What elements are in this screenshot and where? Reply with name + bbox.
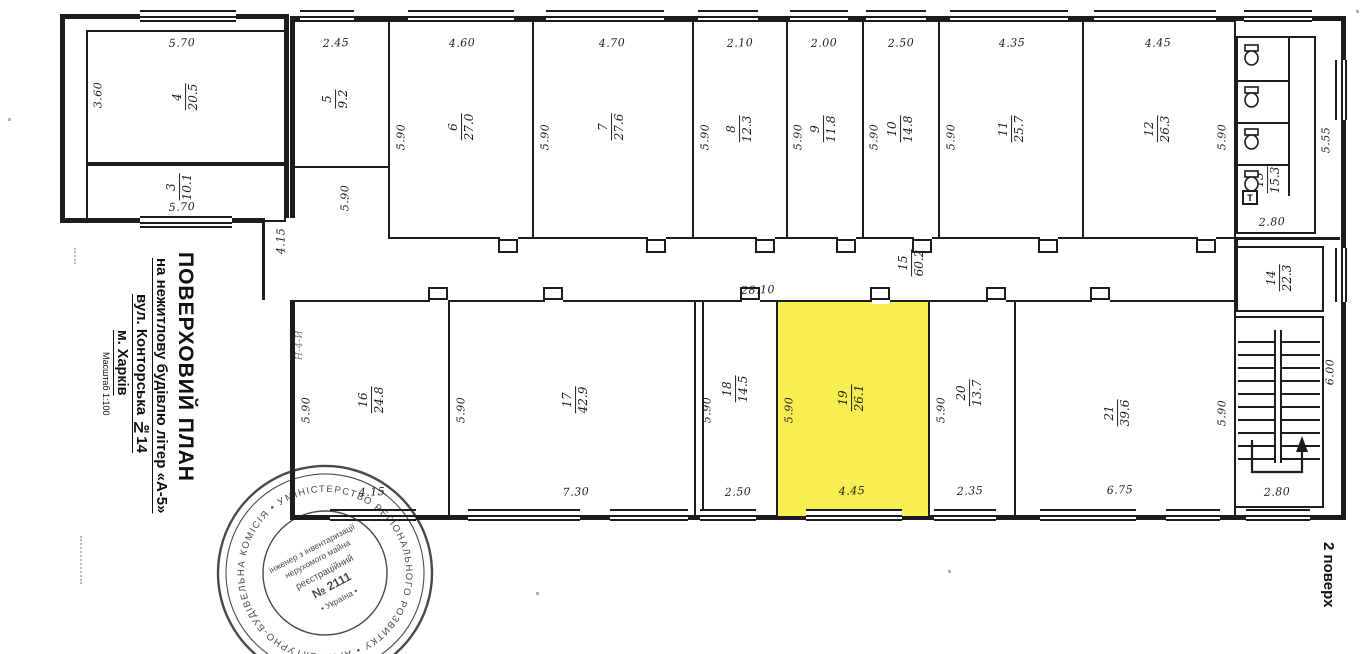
window-marker — [806, 509, 902, 521]
dimension-label: 5.90 — [792, 124, 805, 151]
passage-dimension: 4.15 — [275, 228, 288, 255]
room-number: 19 — [837, 385, 852, 412]
window-marker — [140, 10, 236, 22]
dimension-label: 2.80 — [1259, 215, 1286, 229]
dimension-label: 5.90 — [699, 124, 712, 151]
toilet-icon — [1243, 86, 1261, 108]
city-line: м. Харків — [114, 252, 130, 572]
dimension-label: 3.60 — [92, 82, 105, 109]
room-number: 17 — [561, 387, 576, 414]
dimension-label: 2.35 — [957, 484, 984, 498]
room-area: 26.3 — [1159, 116, 1173, 143]
window-marker — [1166, 509, 1220, 521]
room-label: 420.5 — [171, 84, 201, 111]
room-number: 5 — [321, 89, 336, 108]
window-marker — [610, 509, 688, 521]
dimension-label: 5.90 — [868, 124, 881, 151]
address-line: вул. Конторська №14 — [133, 252, 150, 572]
dimension-label: 4.45 — [839, 484, 866, 498]
dimension-label: 5.90 — [300, 397, 313, 424]
dimension-label: 2.50 — [725, 485, 752, 499]
corridor-label: 15 60.2 — [897, 250, 927, 277]
room-number: 7 — [597, 114, 612, 141]
window-marker — [790, 10, 848, 22]
dimension-label: 5.90 — [339, 185, 352, 212]
door-pier — [755, 239, 775, 253]
toilet-icon — [1243, 44, 1261, 66]
scan-artifact — [74, 248, 76, 264]
dimension-label: 5.55 — [1320, 127, 1333, 154]
room-label: 2013.7 — [955, 380, 985, 407]
room-number: 14 — [1265, 265, 1280, 292]
scan-speck — [8, 118, 11, 121]
window-marker — [1335, 60, 1347, 120]
room-label: 1226.3 — [1143, 116, 1173, 143]
floor-note: 2 поверх — [1320, 542, 1337, 607]
window-marker — [140, 216, 232, 228]
room-label: 2139.6 — [1103, 400, 1133, 427]
dimension-label: 4.60 — [449, 36, 476, 50]
scan-speck — [1356, 10, 1359, 13]
dimension-label: 5.90 — [1216, 400, 1229, 427]
room-area: 14.8 — [902, 116, 916, 143]
room-area: 12.3 — [741, 116, 755, 143]
door-pier — [1196, 239, 1216, 253]
door-pier — [870, 287, 890, 300]
window-marker — [1246, 509, 1310, 521]
dimension-label: 2.50 — [888, 36, 915, 50]
window-marker — [1094, 10, 1216, 22]
dimension-label: 4.70 — [599, 36, 626, 50]
room-label: 59.2 — [321, 89, 351, 108]
room-area: 20.5 — [187, 84, 201, 111]
window-marker — [1244, 10, 1312, 22]
room-number: 10 — [886, 116, 901, 143]
room-area: 26.1 — [853, 385, 867, 412]
room-label: 1014.8 — [886, 116, 916, 143]
dimension-label: 5.70 — [169, 36, 196, 50]
door-pier — [543, 287, 563, 300]
window-marker — [408, 10, 514, 22]
dimension-label: 5.90 — [1216, 124, 1229, 151]
door-pier — [1038, 239, 1058, 253]
floor-plan-page: 310.15.70420.55.703.6059.22.455.90627.04… — [0, 0, 1367, 654]
window-marker — [546, 10, 664, 22]
room-label: 1742.9 — [561, 387, 591, 414]
wc-stall-divider — [1238, 122, 1290, 124]
room-number: 21 — [1103, 400, 1118, 427]
door-pier — [428, 287, 448, 300]
right-hall-wall — [1236, 237, 1340, 240]
room-area: 39.6 — [1119, 400, 1133, 427]
window-marker — [1335, 248, 1347, 302]
room-label: 727.6 — [597, 114, 627, 141]
room-label: 1422.3 — [1265, 265, 1295, 292]
room-number: 20 — [955, 380, 970, 407]
room-number: 12 — [1143, 116, 1158, 143]
dimension-label: 5.90 — [395, 124, 408, 151]
room-area: 27.6 — [613, 114, 627, 141]
room-area: 22.3 — [1281, 265, 1295, 292]
toilet-icon — [1243, 170, 1261, 192]
room-area: 25.7 — [1013, 116, 1027, 143]
window-marker — [866, 10, 926, 22]
room-number: 4 — [171, 84, 186, 111]
dimension-label: 2.45 — [323, 36, 350, 50]
room-number: 18 — [721, 376, 736, 403]
room-number: 11 — [997, 116, 1012, 143]
room-label: 627.0 — [447, 114, 477, 141]
corridor-length-dimension: 28.10 — [741, 283, 775, 297]
handwritten-note: Н-4-И — [295, 330, 305, 360]
dimension-label: 6.75 — [1107, 483, 1134, 497]
scan-artifact — [80, 536, 82, 584]
dimension-label: 5.90 — [935, 397, 948, 424]
scan-speck — [536, 592, 539, 595]
dimension-label: 2.10 — [727, 36, 754, 50]
window-marker — [1040, 509, 1136, 521]
dimension-label: 5.90 — [945, 124, 958, 151]
wc-stall-divider — [1238, 80, 1290, 82]
wc-sink-box: Т — [1242, 190, 1258, 205]
room-area: 15.3 — [1269, 167, 1283, 194]
wc-stall-divider — [1238, 164, 1290, 166]
door-pier — [646, 239, 666, 253]
room-area: 27.0 — [463, 114, 477, 141]
room-number: 8 — [725, 116, 740, 143]
window-marker — [950, 10, 1068, 22]
room-number: 3 — [165, 174, 180, 201]
room-label: 911.8 — [809, 116, 839, 143]
stairs-width-dimension: 2.80 — [1264, 485, 1291, 499]
door-pier — [986, 287, 1006, 300]
dimension-label: 5.90 — [701, 397, 714, 424]
dimension-label: 5.90 — [783, 397, 796, 424]
room-label: 1814.5 — [721, 376, 751, 403]
door-pier — [498, 239, 518, 253]
scale-note: Масштаб 1:100 — [101, 252, 111, 572]
window-marker — [300, 10, 354, 22]
window-marker — [934, 509, 996, 521]
room-number: 15 — [897, 250, 912, 277]
room-label: 1125.7 — [997, 116, 1027, 143]
dimension-label: 4.45 — [1145, 36, 1172, 50]
room-number: 9 — [809, 116, 824, 143]
room-area: 10.1 — [181, 174, 195, 201]
room-area: 14.5 — [737, 376, 751, 403]
room-label: 310.1 — [165, 174, 195, 201]
room-label: 1926.1 — [837, 385, 867, 412]
room-label: 812.3 — [725, 116, 755, 143]
toilet-icon — [1243, 128, 1261, 150]
dimension-label: 5.70 — [169, 200, 196, 214]
dimension-label: 5.90 — [539, 124, 552, 151]
window-marker — [700, 509, 756, 521]
wc-stall-front-wall — [1288, 38, 1290, 196]
room-area: 42.9 — [577, 387, 591, 414]
dimension-label: 2.00 — [811, 36, 838, 50]
dimension-label: 5.90 — [455, 397, 468, 424]
dimension-label: 4.35 — [999, 36, 1026, 50]
scan-speck — [948, 570, 951, 573]
door-pier — [836, 239, 856, 253]
room-area: 60.2 — [913, 250, 927, 277]
door-pier — [1090, 287, 1110, 300]
room-area: 13.7 — [971, 380, 985, 407]
window-marker — [468, 509, 580, 521]
dimension-label: 7.30 — [563, 485, 590, 499]
room-number: 6 — [447, 114, 462, 141]
room-area: 11.8 — [825, 116, 839, 143]
stairs-height-dimension: 6.00 — [1324, 359, 1337, 386]
room-area: 9.2 — [337, 89, 351, 108]
window-marker — [698, 10, 758, 22]
